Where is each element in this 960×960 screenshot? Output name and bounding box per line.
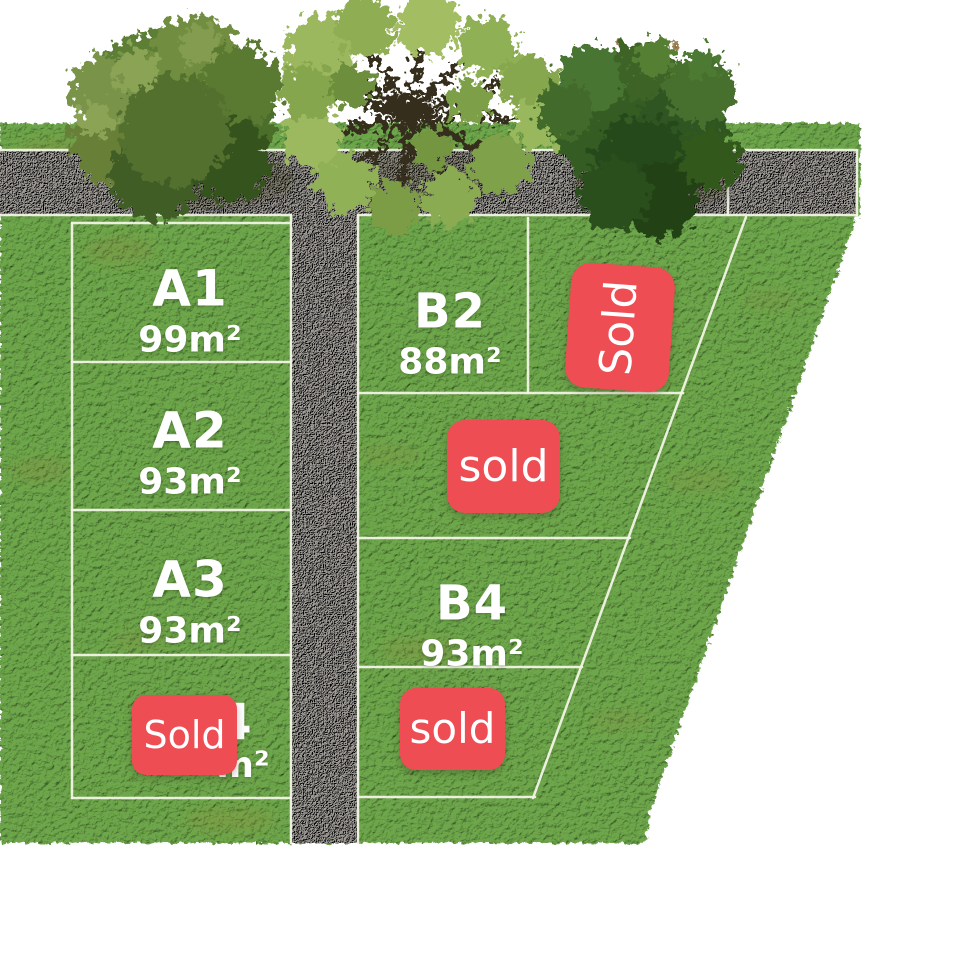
- plot-area-b2: 88m²: [398, 345, 501, 381]
- plot-area-b4: 93m²: [420, 637, 523, 673]
- plot-id-b4: B4: [420, 580, 523, 628]
- sold-badge-b-middle: sold: [447, 420, 560, 513]
- plot-id-a1: A1: [138, 264, 241, 314]
- plot-area-a3: 93m²: [138, 614, 241, 650]
- plot-area-a1: 99m²: [138, 323, 241, 359]
- plot-label-b2: B2 88m²: [398, 288, 501, 381]
- plot-label-a2: A2 93m²: [138, 406, 241, 501]
- sold-badge-a4: Sold: [132, 695, 237, 775]
- plot-id-a3: A3: [138, 555, 241, 605]
- plot-label-b4: B4 93m²: [420, 580, 523, 673]
- sold-badge-b-bottom: sold: [400, 688, 505, 770]
- sold-badge-b-corner: Sold: [564, 262, 676, 394]
- plot-area-a2: 93m²: [138, 465, 241, 501]
- plot-id-b2: B2: [398, 288, 501, 336]
- plot-label-a3: A3 93m²: [138, 555, 241, 650]
- plot-id-a2: A2: [138, 406, 241, 456]
- subdivision-map: A1 99m² A2 93m² A3 93m² A4 m² B2 88m² B4…: [0, 0, 960, 960]
- plot-label-a1: A1 99m²: [138, 264, 241, 359]
